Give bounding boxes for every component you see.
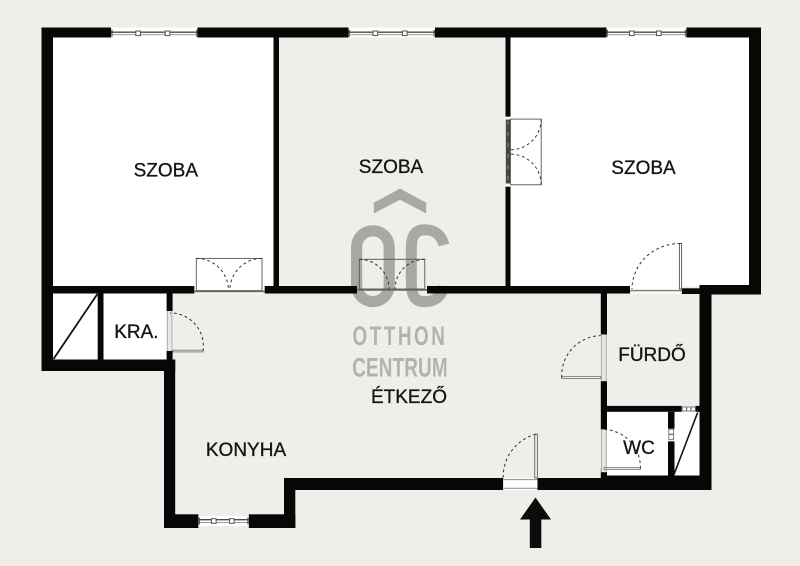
svg-text:ÉTKEZŐ: ÉTKEZŐ: [371, 386, 447, 408]
svg-text:KONYHA: KONYHA: [206, 440, 287, 461]
svg-text:CENTRUM: CENTRUM: [352, 352, 447, 382]
svg-text:SZOBA: SZOBA: [134, 160, 199, 181]
svg-text:SZOBA: SZOBA: [359, 157, 424, 178]
svg-text:OTTHON: OTTHON: [353, 321, 448, 351]
svg-text:WC: WC: [623, 438, 655, 459]
svg-text:KRA.: KRA.: [114, 322, 158, 343]
svg-text:FÜRDŐ: FÜRDŐ: [618, 344, 686, 366]
svg-text:SZOBA: SZOBA: [611, 158, 676, 179]
